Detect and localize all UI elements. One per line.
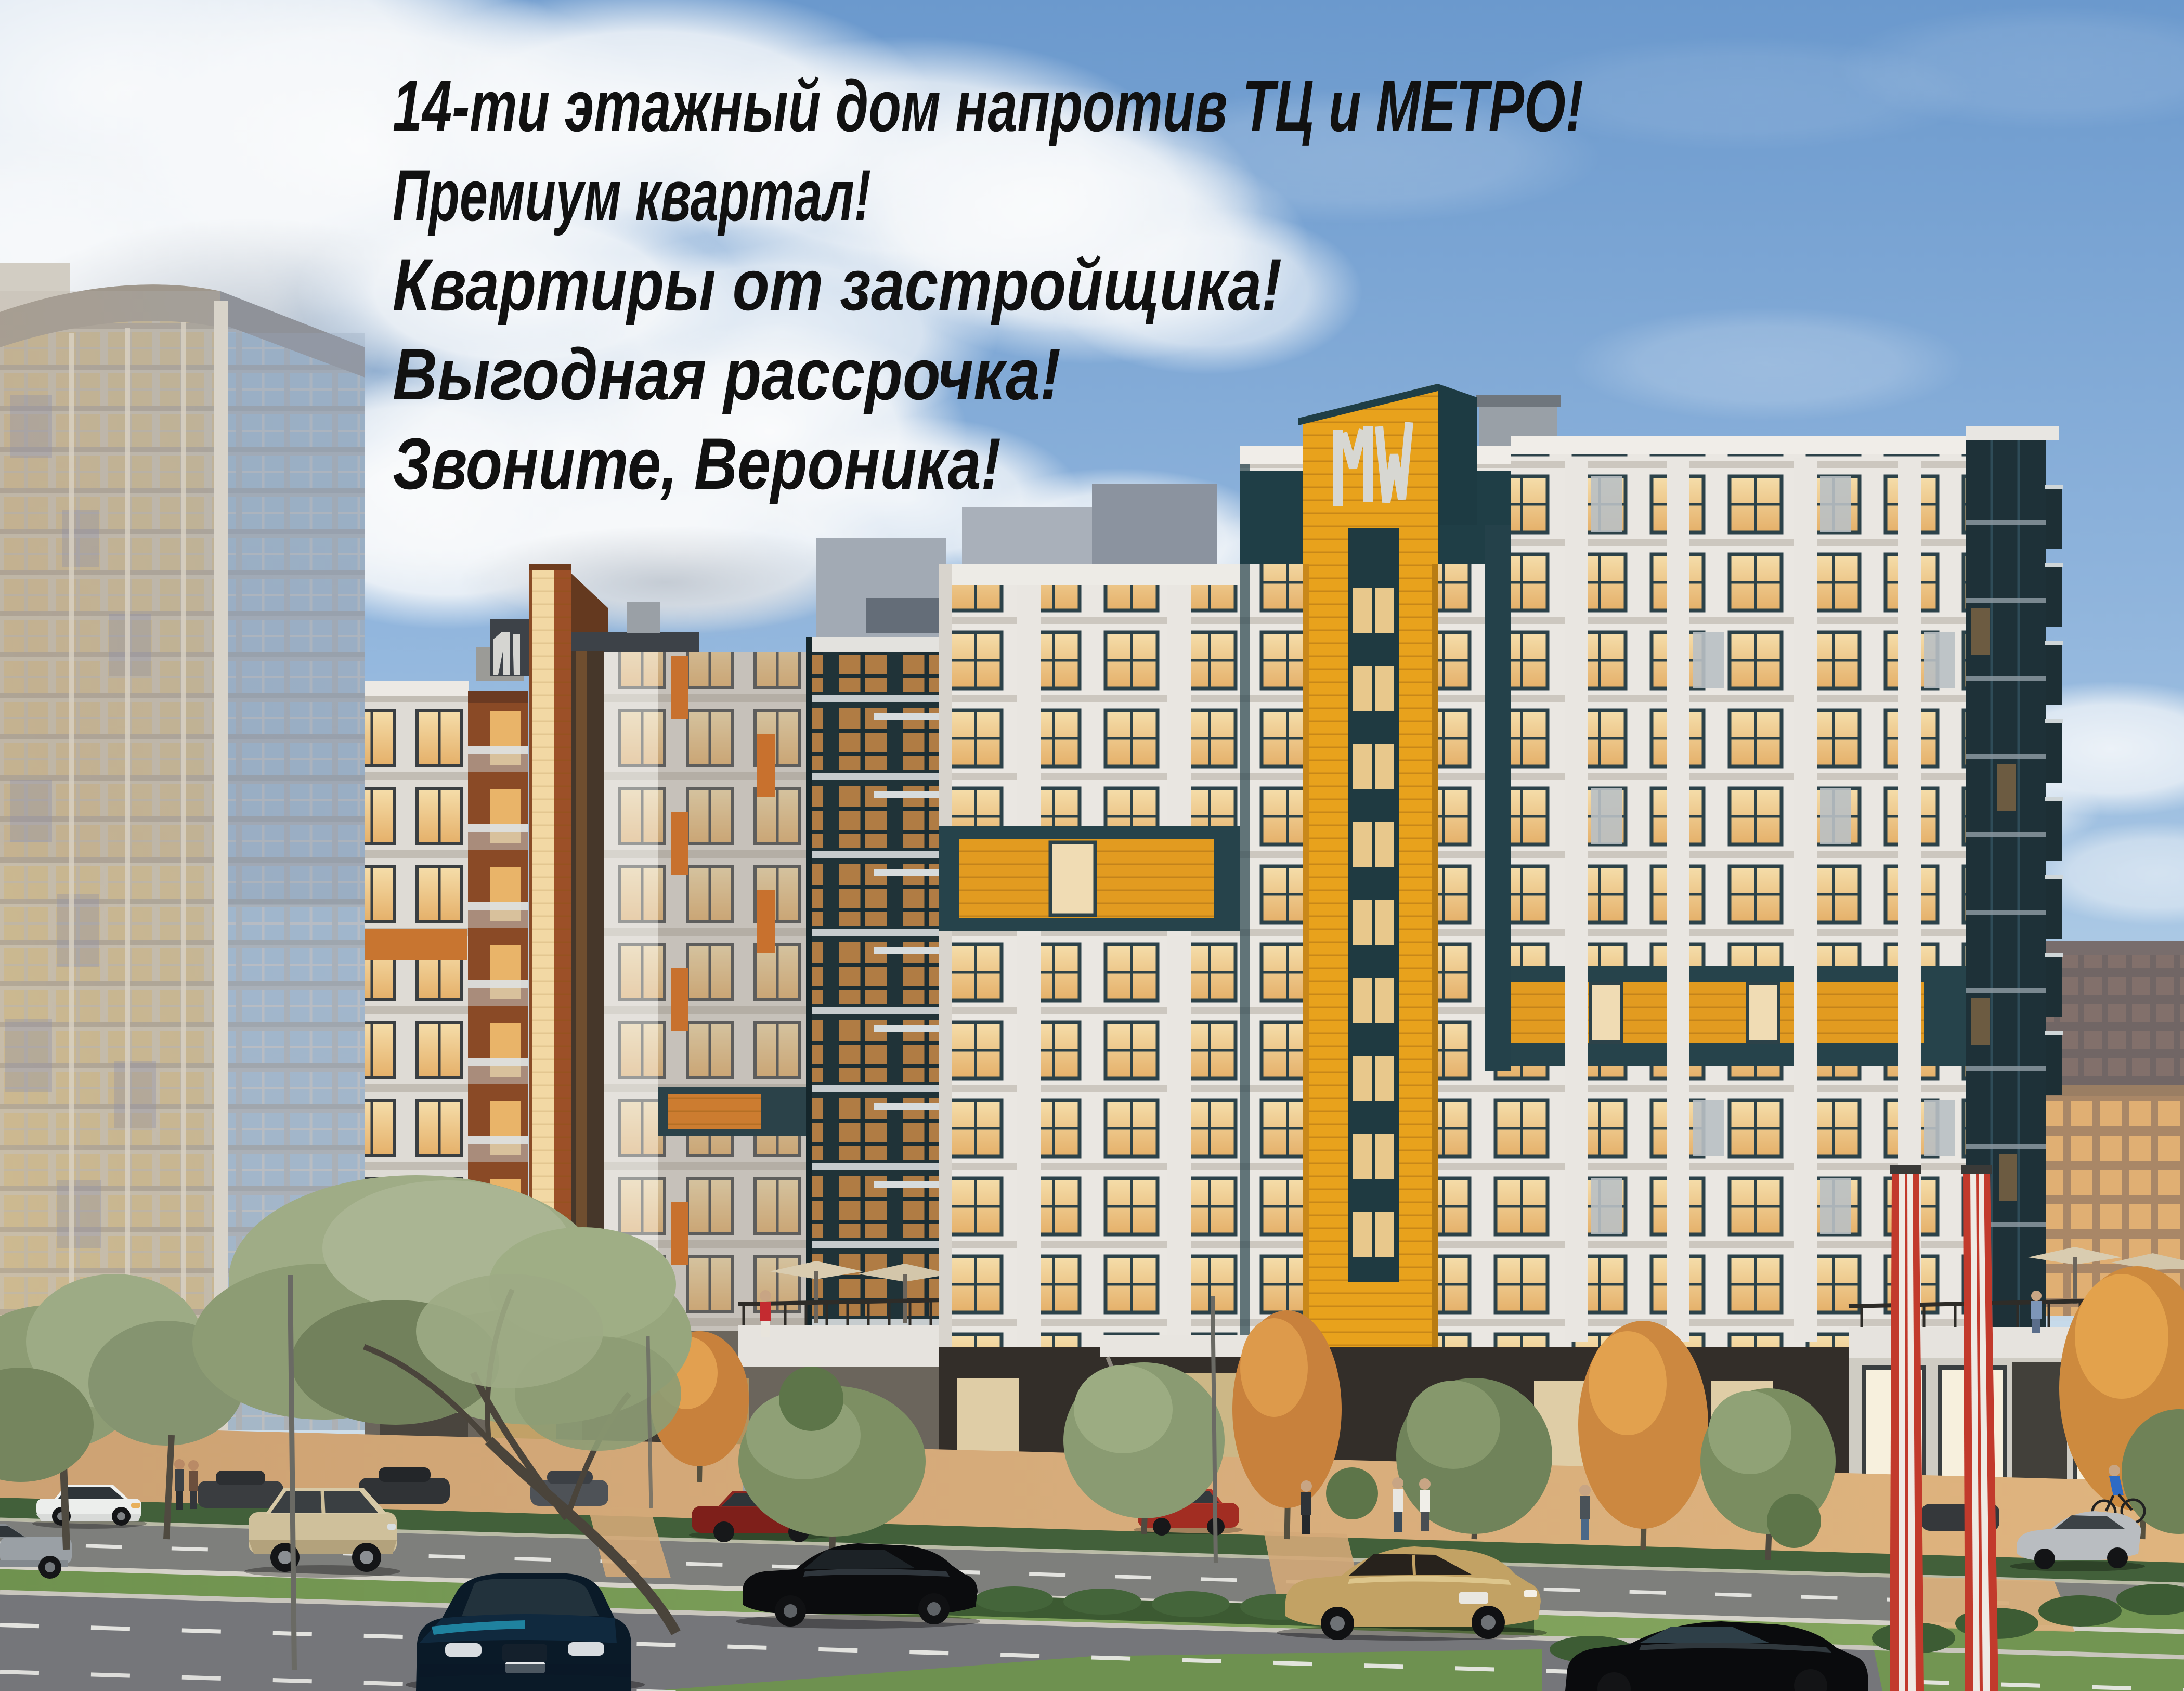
svg-text:Квартиры от застройщика!: Квартиры от застройщика! [393,244,1282,326]
svg-text:Выгодная рассрочка!: Выгодная рассрочка! [393,333,1061,415]
svg-text:14-ти этажный дом напротив ТЦ: 14-ти этажный дом напротив ТЦ и МЕТРО! [393,65,1583,147]
svg-text:Премиум квартал!: Премиум квартал! [393,154,871,236]
svg-text:Звоните, Вероника!: Звоните, Вероника! [393,423,1001,504]
